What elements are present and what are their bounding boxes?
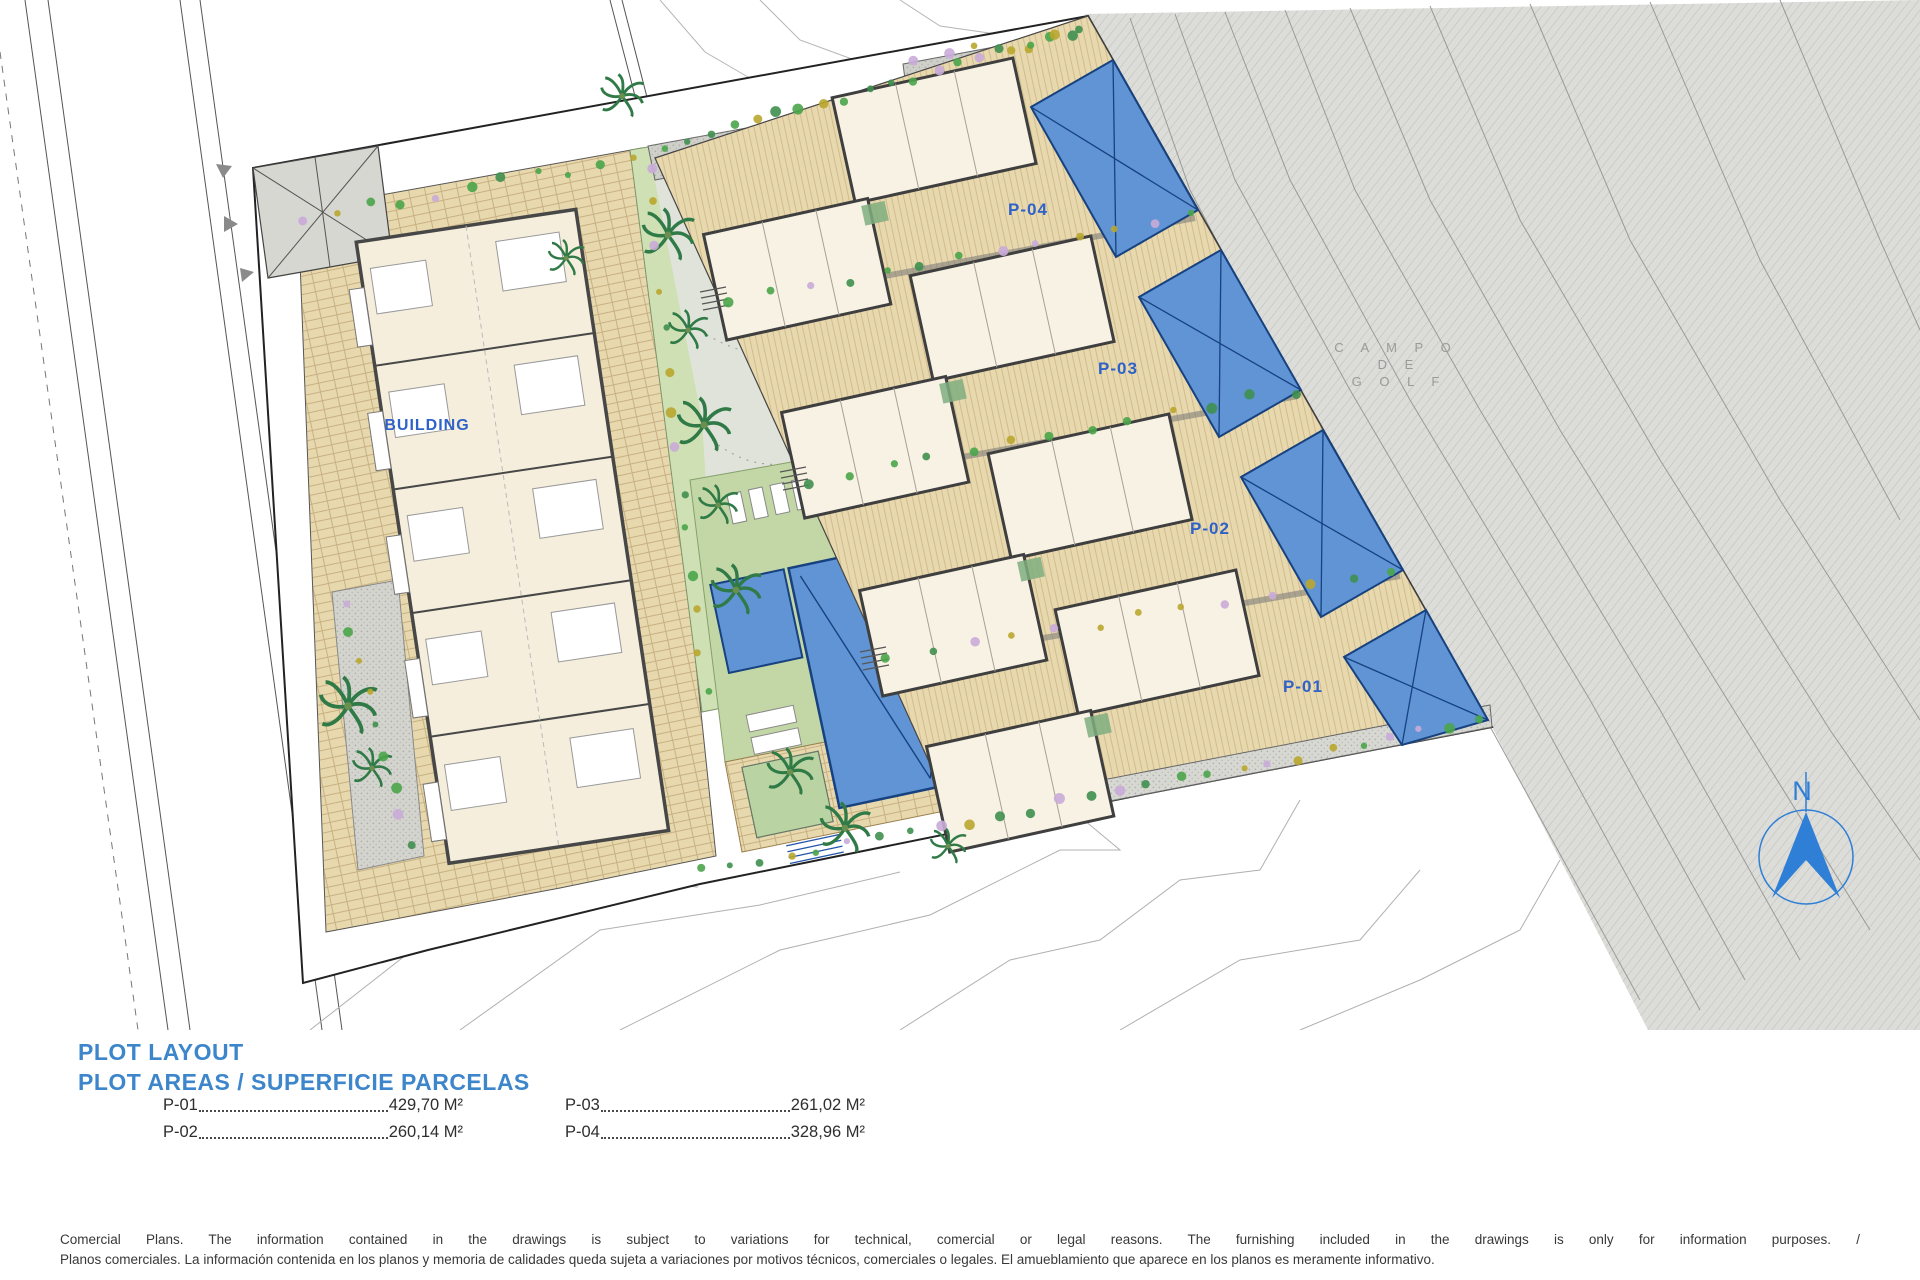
plot-label-p03: P-03 xyxy=(1098,359,1138,378)
site-plan-page: C A M P O D E G O L F xyxy=(0,0,1920,1280)
golf-label-line3: G O L F xyxy=(1352,374,1447,389)
page-title: PLOT LAYOUT xyxy=(78,1038,530,1068)
golf-label-line2: D E xyxy=(1378,357,1421,372)
plot-area-label: P-04 xyxy=(565,1123,600,1142)
plot-area-row-p01: P-01 429,70 M² xyxy=(163,1096,463,1115)
north-label: N xyxy=(1792,776,1812,806)
plot-label-p04: P-04 xyxy=(1008,200,1048,219)
plot-area-label: P-03 xyxy=(565,1096,600,1115)
plot-label-p02: P-02 xyxy=(1190,519,1230,538)
leader-dots xyxy=(199,1137,388,1139)
leader-dots xyxy=(199,1110,388,1112)
plot-area-label: P-02 xyxy=(163,1123,198,1142)
golf-label-line1: C A M P O xyxy=(1334,340,1457,355)
building-label: BUILDING xyxy=(384,417,469,434)
disclaimer-line-es: Planos comerciales. La información conte… xyxy=(60,1250,1860,1270)
page-subtitle: PLOT AREAS / SUPERFICIE PARCELAS xyxy=(78,1068,530,1098)
leader-dots xyxy=(601,1137,790,1139)
plot-area-row-p03: P-03 261,02 M² xyxy=(565,1096,865,1115)
road-arrows xyxy=(216,164,254,282)
plot-label-p01: P-01 xyxy=(1283,677,1323,696)
disclaimer-line-en: Comercial Plans. The information contain… xyxy=(60,1230,1860,1250)
plot-area-value: 328,96 M² xyxy=(791,1123,865,1142)
plot-area-value: 260,14 M² xyxy=(389,1123,463,1142)
plot-area-row-p04: P-04 328,96 M² xyxy=(565,1123,865,1142)
leader-dots xyxy=(601,1110,790,1112)
plot-area-value: 261,02 M² xyxy=(791,1096,865,1115)
plot-area-value: 429,70 M² xyxy=(389,1096,463,1115)
plot-area-row-p02: P-02 260,14 M² xyxy=(163,1123,463,1142)
site-plan-drawing: C A M P O D E G O L F xyxy=(0,0,1920,1030)
disclaimer: Comercial Plans. The information contain… xyxy=(60,1230,1860,1271)
plot-area-label: P-01 xyxy=(163,1096,198,1115)
legend-block: PLOT LAYOUT PLOT AREAS / SUPERFICIE PARC… xyxy=(78,1038,530,1098)
